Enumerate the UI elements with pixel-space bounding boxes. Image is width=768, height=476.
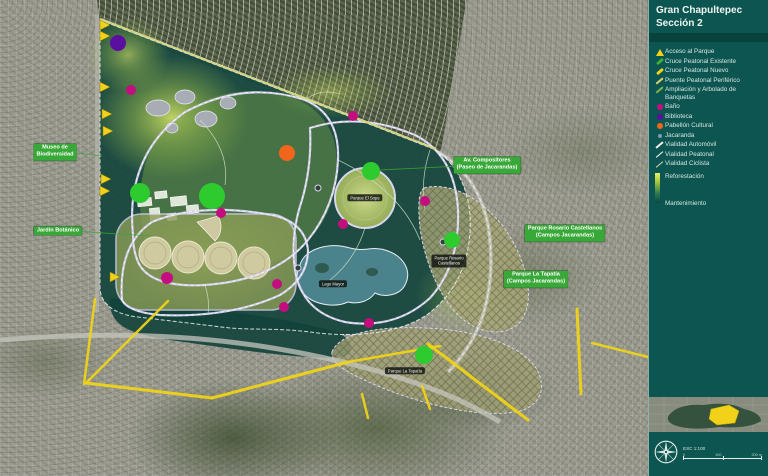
legend-item-puente-peatonal-periferico: Puente Peatonal Periférico <box>654 77 763 85</box>
legend-label: Cruce Peatonal Existente <box>665 58 736 66</box>
cruce-peatonal-nuevo-icon <box>654 67 665 75</box>
legend-panel: Gran Chapultepec Sección 2 Acceso al Par… <box>648 0 768 476</box>
bath-marker <box>364 318 374 328</box>
pabellon-cultural-icon <box>654 122 665 130</box>
road-improvement-highlight <box>212 362 348 398</box>
legend-item-biblioteca: Biblioteca <box>654 113 763 121</box>
library-marker <box>110 35 126 51</box>
map-canvas[interactable]: Museo de BiodiversidadJardín BotánicoAv.… <box>0 0 648 476</box>
legend-item-vialidad-ciclista: Vialidad Ciclista <box>654 160 763 168</box>
jacaranda-marker <box>362 162 380 180</box>
road-improvement-highlight <box>362 394 368 418</box>
puente-peatonal-periferico-icon <box>654 77 665 85</box>
legend-label: Vialidad Ciclista <box>665 160 709 168</box>
legend-item-pabellon-cultural: Pabellón Cultural <box>654 122 763 130</box>
acceso-al-parque-icon <box>654 48 665 56</box>
legend-item-cruce-peatonal-existente: Cruce Peatonal Existente <box>654 58 763 66</box>
legend-item-ampliacion-y-arbolado-de-banquetas: Ampliación y Arbolado de Banquetas <box>654 86 763 102</box>
maintenance-label: Mantenimiento <box>665 200 706 207</box>
jacaranda-marker <box>415 346 433 364</box>
jacaranda-marker <box>444 232 460 248</box>
bath-marker <box>272 279 282 289</box>
road-improvement-highlight <box>592 343 648 357</box>
bath-marker <box>420 196 430 206</box>
road-improvement-highlight <box>86 383 212 398</box>
legend-item-bano: Baño <box>654 103 763 111</box>
scale-bar-group: ESC 1:100 0100200 m <box>683 446 762 459</box>
bath-marker <box>348 111 358 121</box>
legend-item-jacaranda: Jacaranda <box>654 132 763 140</box>
legend-label: Jacaranda <box>665 132 694 140</box>
legend-label: Cruce Peatonal Nuevo <box>665 67 728 75</box>
road-improvement-highlight <box>577 309 581 394</box>
jacaranda-marker <box>130 183 150 203</box>
legend-label: Baño <box>665 103 680 111</box>
cruce-peatonal-existente-icon <box>654 58 665 66</box>
plan-subtitle: Sección 2 <box>656 18 761 31</box>
legend-item-vialidad-peatonal: Vialidad Peatonal <box>654 151 763 159</box>
reforestation-label: Reforestación <box>665 173 706 180</box>
reforestation-gradient-row: Reforestación Mantenimiento <box>649 170 768 207</box>
pavilion-marker <box>279 145 295 161</box>
vialidad-peatonal-icon <box>654 151 665 159</box>
jacaranda-icon <box>654 132 665 140</box>
legend-label: Acceso al Parque <box>665 48 714 56</box>
panel-footer: ESC 1:100 0100200 m <box>649 432 768 476</box>
vialidad-automovil-icon <box>654 141 665 149</box>
jacaranda-marker <box>199 183 225 209</box>
plan-sheet: Museo de BiodiversidadJardín BotánicoAv.… <box>0 0 768 476</box>
road-improvement-highlight <box>84 299 95 384</box>
reforestation-gradient-bar <box>655 173 660 203</box>
legend-item-vialidad-automovil: Vialidad Automóvil <box>654 141 763 149</box>
legend-item-cruce-peatonal-nuevo: Cruce Peatonal Nuevo <box>654 67 763 75</box>
legend-label: Ampliación y Arbolado de Banquetas <box>665 86 763 102</box>
legend-list: Acceso al ParqueCruce Peatonal Existente… <box>649 48 768 170</box>
bath-marker <box>216 208 226 218</box>
bano-icon <box>654 103 665 111</box>
legend-label: Vialidad Peatonal <box>665 151 714 159</box>
compass-rose-icon <box>653 439 679 465</box>
ampliacion-y-arbolado-de-banquetas-icon <box>654 86 665 94</box>
locator-inset-map <box>649 397 768 432</box>
legend-label: Vialidad Automóvil <box>665 141 716 149</box>
vialidad-ciclista-icon <box>654 160 665 168</box>
legend-label: Pabellón Cultural <box>665 122 713 130</box>
scale-text: ESC 1:100 <box>683 446 762 451</box>
biblioteca-icon <box>654 113 665 121</box>
legend-item-acceso-al-parque: Acceso al Parque <box>654 48 763 56</box>
bath-marker <box>338 219 348 229</box>
panel-title: Gran Chapultepec Sección 2 <box>649 0 768 33</box>
legend-label: Biblioteca <box>665 113 692 121</box>
title-divider-band <box>649 33 768 42</box>
bath-marker <box>126 85 136 95</box>
scale-bar <box>683 458 762 459</box>
bath-marker <box>279 302 289 312</box>
plan-title: Gran Chapultepec <box>656 5 761 18</box>
legend-label: Puente Peatonal Periférico <box>665 77 740 85</box>
plan-overlay <box>0 0 648 476</box>
bath-marker <box>161 272 173 284</box>
